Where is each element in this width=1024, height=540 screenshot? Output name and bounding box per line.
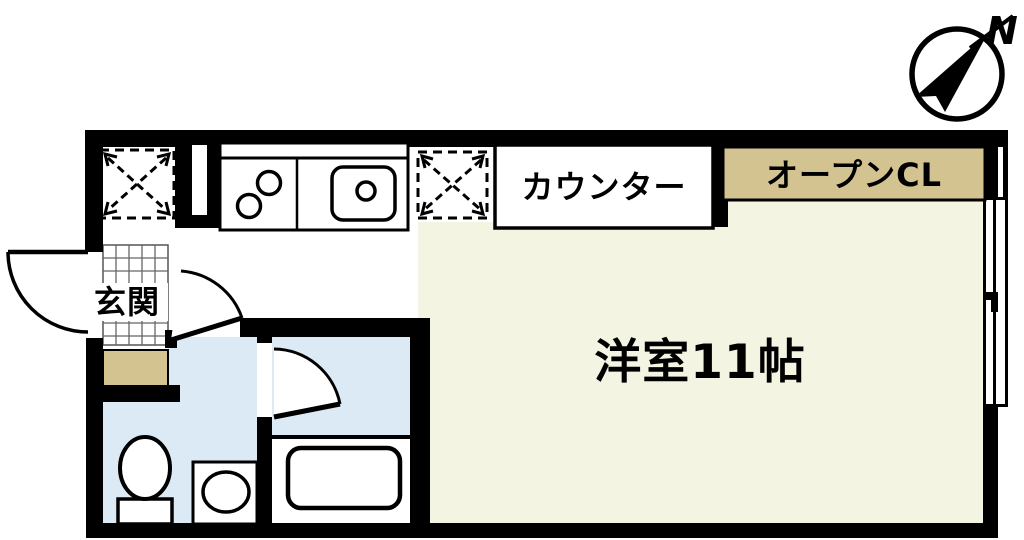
washbasin-bowl: [203, 472, 249, 512]
entrance-step: [103, 350, 168, 387]
wall-right-outer-line: [1003, 133, 1008, 200]
toilet-tank: [118, 499, 172, 524]
compass-north-label: N: [986, 9, 1018, 53]
wall-entrance-south: [92, 385, 180, 402]
wall-washroom-north: [240, 318, 430, 337]
washbasin: [193, 462, 257, 524]
bathtub-zone-edge: [272, 435, 410, 439]
floorplan-canvas: 玄関 カウンター オープンCL 洋室11帖 N: [0, 0, 1024, 540]
sliding-window: [983, 197, 1008, 407]
wall-right-lower: [983, 404, 998, 534]
wall-left-lower: [86, 338, 103, 538]
bathtub: [288, 448, 400, 508]
toilet-bowl: [120, 437, 170, 499]
entrance-label: 玄関: [94, 283, 160, 321]
sink-drain: [357, 182, 375, 200]
stove-burner-1: [258, 172, 281, 195]
bath-doorway-gap: [257, 343, 272, 417]
floorplan-drawing: 玄関 カウンター オープンCL 洋室11帖 N: [0, 0, 1024, 540]
kitchen-counter: [220, 143, 408, 230]
open-closet-label: オープンCL: [766, 156, 942, 194]
wall-kitchen-divider-notch: [192, 145, 207, 215]
counter-label: カウンター: [521, 168, 686, 206]
stove-burner-2: [238, 195, 261, 218]
main-room-floor-upper: [728, 198, 985, 224]
window-latch: [985, 292, 998, 300]
wall-bath-east: [410, 318, 430, 523]
toilet: [118, 437, 172, 524]
main-room-label: 洋室11帖: [594, 335, 805, 390]
